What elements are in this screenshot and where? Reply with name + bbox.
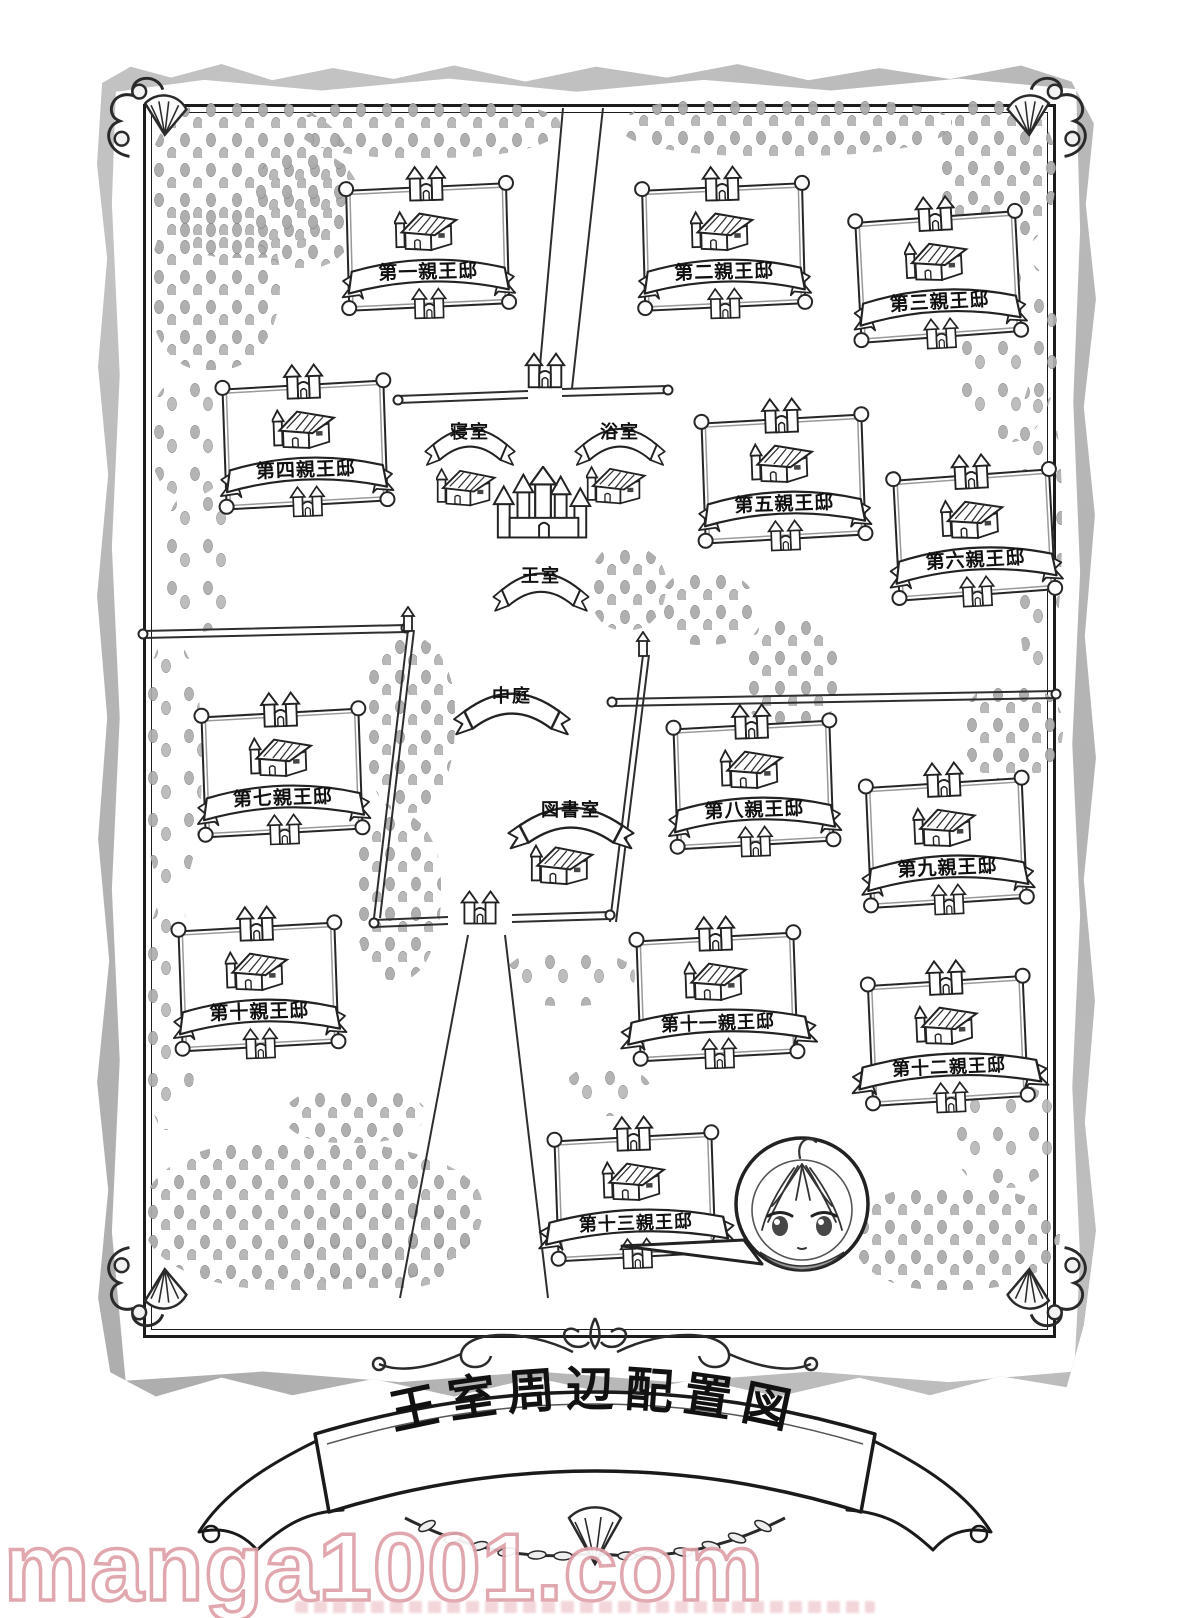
- forest-patch: [355, 812, 441, 980]
- estate-1: 第一親王邸: [343, 174, 513, 348]
- forest-patch: [963, 683, 1063, 779]
- bedroom-label: 寝室: [422, 423, 518, 441]
- estate-5: 第五親王邸: [698, 405, 870, 581]
- estate-banner: 第八親王邸: [665, 783, 845, 847]
- left-eye: [772, 1216, 788, 1236]
- forest-patch: [285, 1088, 425, 1143]
- estate-banner: 第四親王邸: [216, 443, 396, 507]
- gate-icon: [279, 361, 326, 401]
- estate-banner: 第二親王邸: [635, 246, 814, 309]
- forest-patch: [300, 98, 560, 158]
- fleur-de-lis-icon: [591, 1318, 600, 1348]
- gate-icon: [728, 701, 775, 741]
- forest-patch: [660, 570, 755, 645]
- gate-icon: [691, 913, 738, 953]
- speech-bubble-tail: [622, 1240, 762, 1264]
- bedroom-house-icon: [436, 462, 498, 509]
- gate-icon: [911, 193, 959, 233]
- estate-banner: 第五親王邸: [695, 477, 875, 541]
- courtyard: 中庭: [450, 670, 574, 740]
- royal-room-label: 王室: [490, 567, 592, 585]
- gate-icon: [233, 903, 280, 943]
- gate-icon: [402, 163, 449, 202]
- gate-icon: [698, 163, 745, 202]
- forest-patch: [505, 950, 635, 1006]
- gate-icon: [256, 689, 303, 729]
- estate-banner: 第十一親王邸: [616, 994, 820, 1059]
- room-bedroom: 寝室: [422, 408, 518, 470]
- estate-6: 第六親王邸: [890, 460, 1061, 638]
- room-royal: 王室: [490, 552, 592, 616]
- courtyard-label: 中庭: [450, 687, 574, 705]
- forest-patch: [300, 1198, 470, 1290]
- manga-map-page: 第一親王邸 第二親王邸 第三親王邸 第四親王邸: [0, 0, 1188, 1618]
- estate-2: 第二親王邸: [639, 174, 809, 348]
- estate-banner: 第六親王邸: [885, 531, 1066, 598]
- forest-patch: [590, 545, 666, 630]
- estate-11: 第十一親王邸: [633, 923, 802, 1099]
- estate-8: 第八親王邸: [670, 711, 838, 887]
- royal-castle-icon: [490, 466, 598, 552]
- library-house-icon: [530, 838, 596, 888]
- estate-banner: 第三親王邸: [849, 273, 1030, 340]
- forest-patch: [144, 640, 202, 890]
- estate-3: 第三親王邸: [852, 202, 1027, 380]
- corner-flourish-top-left: [100, 70, 208, 178]
- forest-patch: [365, 635, 455, 813]
- estate-banner: 第十二親王邸: [847, 1038, 1051, 1105]
- gate-icon: [921, 957, 969, 997]
- gate-icon: [947, 451, 995, 491]
- gate-icon: [758, 395, 805, 435]
- library-label: 図書室: [504, 801, 638, 819]
- estate-12: 第十二親王邸: [864, 967, 1032, 1144]
- estate-9: 第九親王邸: [862, 769, 1031, 946]
- estate-banner: 第十親王邸: [170, 985, 350, 1049]
- estate-4: 第四親王邸: [219, 371, 392, 547]
- illegible-watermark-strip: [295, 1601, 875, 1613]
- mouth: [798, 1248, 806, 1249]
- gate-icon: [920, 759, 968, 799]
- corner-flourish-top-right: [986, 70, 1094, 178]
- bathroom-label: 浴室: [572, 423, 668, 441]
- speech-bubble: [612, 1122, 890, 1304]
- estate-banner: 第七親王邸: [193, 771, 373, 835]
- estate-banner: 第九親王邸: [858, 840, 1038, 906]
- estate-banner: 第一親王邸: [339, 246, 518, 309]
- estate-10: 第十親王邸: [175, 913, 343, 1089]
- estate-7: 第七親王邸: [198, 699, 367, 875]
- right-eye: [816, 1216, 832, 1236]
- forest-patch: [622, 96, 952, 156]
